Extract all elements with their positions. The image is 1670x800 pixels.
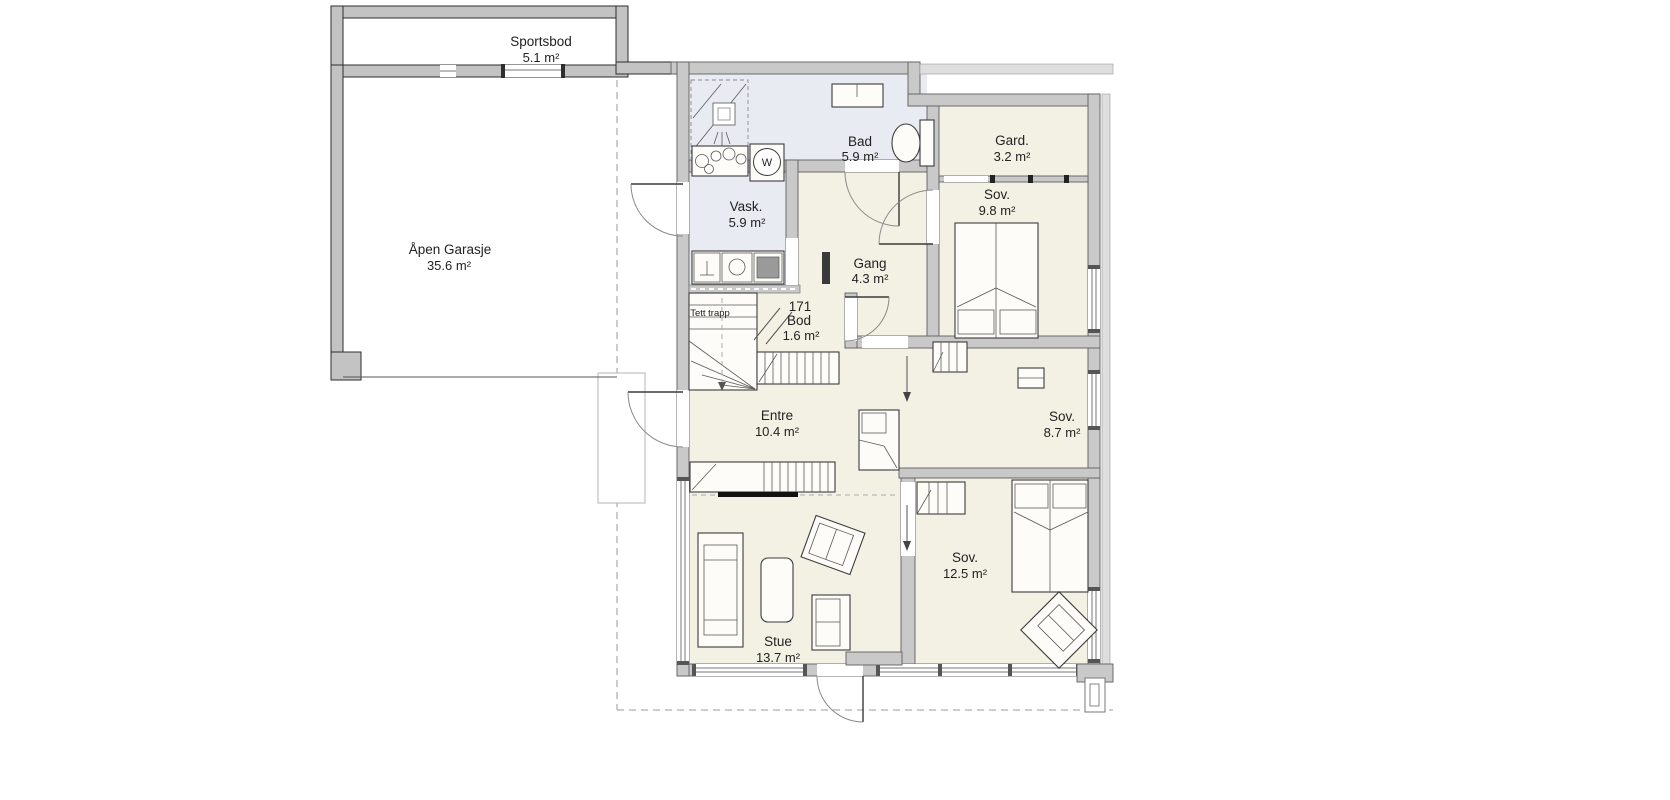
room-label-bod: Bod <box>787 313 811 328</box>
room-label-vask: Vask. <box>730 199 763 214</box>
sov-8-7-window <box>1088 370 1100 430</box>
room-label-sov-12-5: Sov. <box>952 550 978 565</box>
sov-8-7-desk <box>1018 368 1044 388</box>
stair-lower-flight <box>757 352 839 384</box>
door-threshold-pad <box>846 652 902 665</box>
garage-block-walls <box>331 6 689 380</box>
room-area-bad: 5.9 m² <box>842 149 880 164</box>
room-label-bad: Bad <box>848 134 872 149</box>
floor-plan-drawing: W <box>0 0 1670 800</box>
room-label-gang: Gang <box>853 256 886 271</box>
room-label-sportsbod: Sportsbod <box>510 34 572 49</box>
room-area-sov-12-5: 12.5 m² <box>943 566 988 581</box>
room-area-vask: 5.9 m² <box>729 215 767 230</box>
sov-9-8-window <box>1088 265 1100 333</box>
sov-8-7-wardrobe <box>933 342 967 372</box>
room-label-stue: Stue <box>764 634 792 649</box>
sov-8-7-bed <box>859 410 899 470</box>
room-area-stue: 13.7 m² <box>756 650 801 665</box>
coffee-table <box>761 558 793 622</box>
armchair-lower <box>812 595 850 650</box>
sofa <box>698 533 743 647</box>
washer-letter: W <box>762 157 773 169</box>
room-area-bod: 1.6 m² <box>783 328 821 343</box>
stue-left-window <box>677 477 689 665</box>
bathroom-vanity <box>832 84 883 107</box>
room-area-entre: 10.4 m² <box>755 424 800 439</box>
room-label-garasje: Åpen Garasje <box>409 242 492 257</box>
garage-pillar <box>331 352 361 380</box>
room-area-sov-9-8: 9.8 m² <box>979 203 1017 218</box>
stue-bottom-window <box>692 664 807 676</box>
room-number-bod: 171 <box>789 299 812 314</box>
wall-above-band <box>689 285 800 293</box>
sov-12-5-bed <box>1012 480 1088 592</box>
toilet-icon <box>892 120 934 166</box>
stairs-label: Tett trapp <box>690 308 730 319</box>
room-label-sov-8-7: Sov. <box>1049 409 1075 424</box>
sov-9-8-bed <box>955 223 1038 338</box>
stue-exterior-door <box>817 676 863 722</box>
room-label-entre: Entre <box>761 408 793 423</box>
washing-machine-icon: W <box>750 144 784 181</box>
laundry-sink-counter <box>692 146 748 176</box>
vask-exterior-door <box>631 184 683 236</box>
room-area-sov-8-7: 8.7 m² <box>1044 425 1082 440</box>
entre-threshold-bar <box>718 492 798 497</box>
vask-door-leaf <box>822 252 830 284</box>
room-area-sportsbod: 5.1 m² <box>523 50 561 65</box>
entre-wardrobe <box>690 462 835 492</box>
room-area-gang: 4.3 m² <box>852 271 890 286</box>
room-area-gard: 3.2 m² <box>994 149 1032 164</box>
vask-lower-counter <box>692 251 784 284</box>
room-label-sov-9-8: Sov. <box>984 187 1010 202</box>
room-area-garasje: 35.6 m² <box>427 258 472 273</box>
floor-plan-page: W <box>0 0 1670 800</box>
room-label-gard: Gard. <box>995 133 1029 148</box>
sov-12-5-wardrobe <box>917 482 965 514</box>
sov-12-5-bottom-window <box>876 664 1080 676</box>
